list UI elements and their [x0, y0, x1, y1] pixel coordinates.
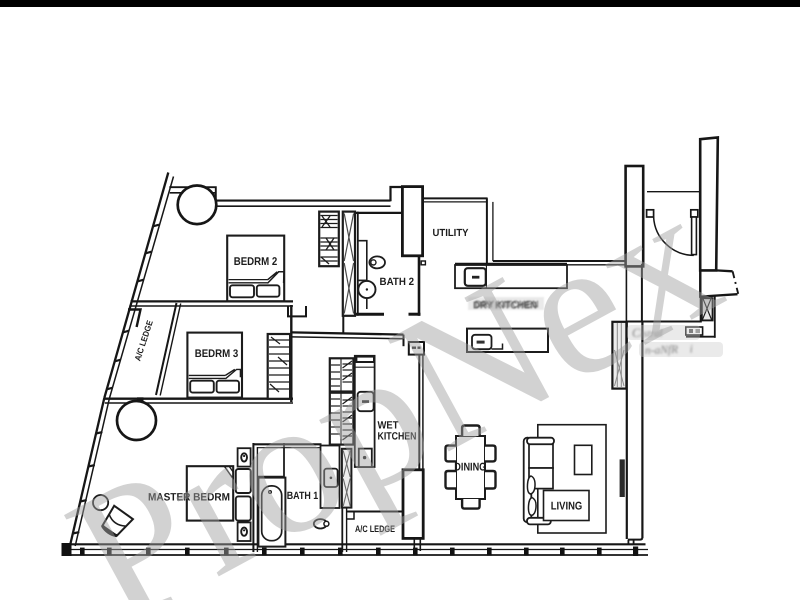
svg-text:UTILITY: UTILITY	[433, 228, 469, 239]
svg-text:LIVING: LIVING	[551, 501, 583, 513]
svg-text:BEDRM 2: BEDRM 2	[234, 256, 278, 268]
svg-text:BEDRM 3: BEDRM 3	[195, 348, 239, 360]
